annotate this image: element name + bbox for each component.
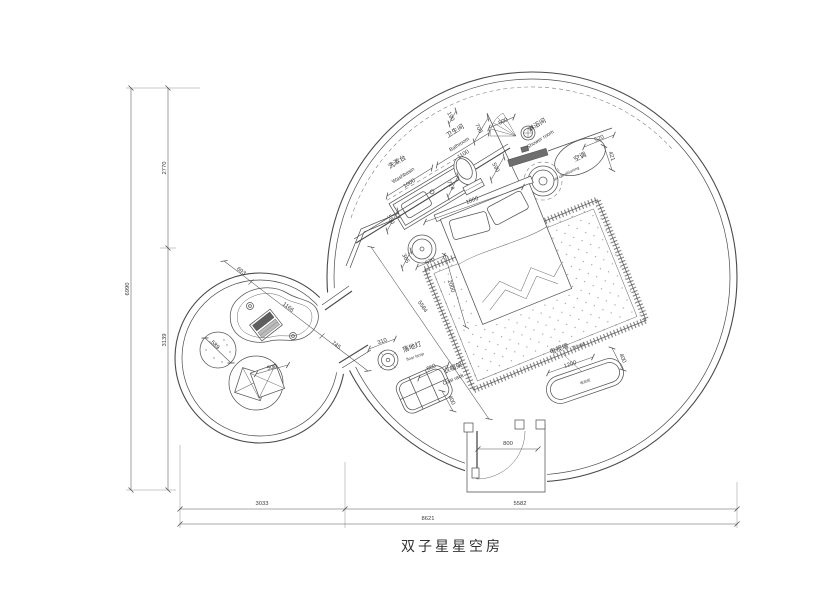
dim-shower-door: 500 — [498, 117, 509, 127]
label-washbasin-cn: 洗漱台 — [386, 153, 407, 171]
ottoman: 589 — [200, 332, 236, 368]
dim-height-bottom: 3139 — [162, 334, 168, 347]
label-ac-en: air conditioning — [552, 165, 580, 182]
dim-ac-w: 520 — [594, 134, 605, 143]
dim-ottoman: 589 — [209, 340, 220, 351]
dim-nightstand-width: 570 — [425, 257, 436, 267]
floor-plan-canvas: 800 空调 air condit — [0, 0, 837, 592]
dim-bath-gap: 190 — [445, 111, 455, 122]
dim-tv-w: 1200 — [563, 360, 577, 370]
dim-coat-rack-w: 660 — [426, 363, 437, 372]
label-tv-cabinet: 电视柜 — [579, 377, 591, 385]
dim-lounge-a: 693 — [235, 266, 246, 277]
dim-shower-w: 590 — [490, 162, 500, 173]
label-shower-cn: 淋浴间 — [526, 116, 547, 134]
corridor-mask — [316, 278, 380, 377]
dim-width-total: 8621 — [422, 516, 435, 522]
dim-entry-door: 800 — [503, 441, 513, 447]
label-bathroom-cn: 卫生间 — [444, 122, 465, 140]
dim-width-left: 3033 — [256, 501, 269, 507]
drawing-title: 双子星星空房 — [401, 539, 503, 555]
outer-dimensions: 6990 2770 3139 3033 5582 8621 — [125, 88, 737, 528]
dim-floor-lamp: 310 — [377, 337, 388, 346]
dim-ac-d: 421 — [607, 151, 616, 162]
beanbag: 500 — [229, 356, 288, 410]
dim-coat-rack-d: 400 — [446, 395, 456, 406]
floor-lamp — [378, 350, 398, 370]
floor-plan-svg: 800 空调 air condit — [0, 0, 837, 592]
dim-height-top: 2770 — [162, 162, 168, 175]
label-ac-cn: 空调 — [572, 150, 588, 164]
tv-cabinet: 电视柜 — [543, 354, 628, 407]
dim-toilet-w: 714 — [445, 180, 455, 192]
dim-room-diagonal: 5584 — [416, 300, 429, 315]
dim-nightstand-offset: 365 — [400, 253, 410, 264]
dim-width-right: 5582 — [514, 501, 527, 507]
dim-lounge-b: 1166 — [281, 301, 295, 313]
kidney-table — [230, 288, 318, 343]
dim-height-total: 6990 — [125, 283, 131, 296]
dim-bath-door: 700 — [473, 123, 483, 134]
bed-group — [407, 156, 646, 390]
